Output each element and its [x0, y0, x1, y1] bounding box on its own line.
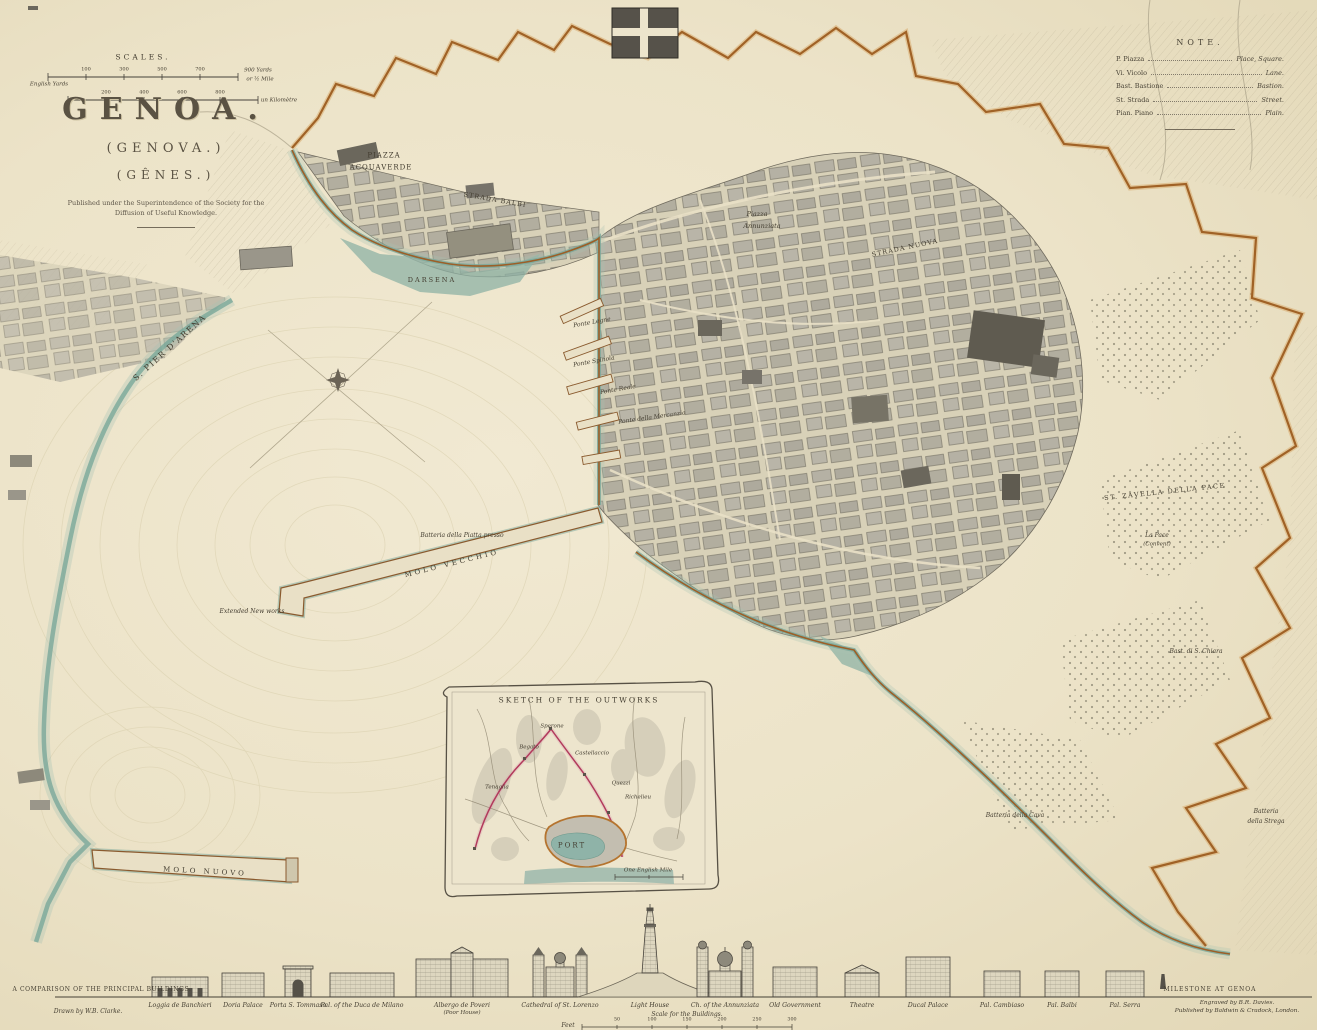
note-row: Bast. BastioneBastion. [1116, 82, 1284, 90]
note-rows: P. PiazzaPlace, Square.Vi. VicoloLane.Ba… [1116, 55, 1284, 117]
note-abbr: St. Strada [1116, 96, 1149, 104]
note-leader [1151, 69, 1262, 75]
note-abbr: P. Piazza [1116, 55, 1144, 63]
note-row: P. PiazzaPlace, Square. [1116, 55, 1284, 63]
note-row: Vi. VicoloLane. [1116, 69, 1284, 77]
note-abbr: Bast. Bastione [1116, 82, 1163, 90]
title-rule [137, 227, 195, 228]
map-title: GENOA. [38, 92, 294, 127]
note-block: NOTE. P. PiazzaPlace, Square.Vi. VicoloL… [1116, 38, 1284, 130]
note-leader [1157, 109, 1261, 115]
note-meaning: Street. [1261, 96, 1284, 104]
note-meaning: Lane. [1266, 69, 1284, 77]
note-row: Pian. PianoPlain. [1116, 109, 1284, 117]
note-meaning: Place, Square. [1236, 55, 1284, 63]
note-abbr: Vi. Vicolo [1116, 69, 1147, 77]
title-block: GENOA. (GENOVA.) (GÊNES.) Published unde… [38, 92, 294, 228]
note-row: St. StradaStreet. [1116, 96, 1284, 104]
note-rule [1165, 129, 1235, 130]
map-subtitle-italian: (GENOVA.) [38, 141, 294, 156]
note-heading: NOTE. [1116, 38, 1284, 47]
building-elevations [152, 904, 1166, 997]
buildings-baseline [55, 997, 1312, 1030]
map-subtitle-french: (GÊNES.) [38, 168, 294, 182]
note-abbr: Pian. Piano [1116, 109, 1153, 117]
note-leader [1148, 55, 1232, 61]
inset-outworks [443, 681, 718, 896]
publisher-imprint: Published under the Superintendence of t… [38, 198, 294, 219]
note-meaning: Bastion. [1257, 82, 1284, 90]
note-leader [1167, 82, 1253, 88]
note-leader [1153, 96, 1257, 102]
note-meaning: Plain. [1265, 109, 1284, 117]
